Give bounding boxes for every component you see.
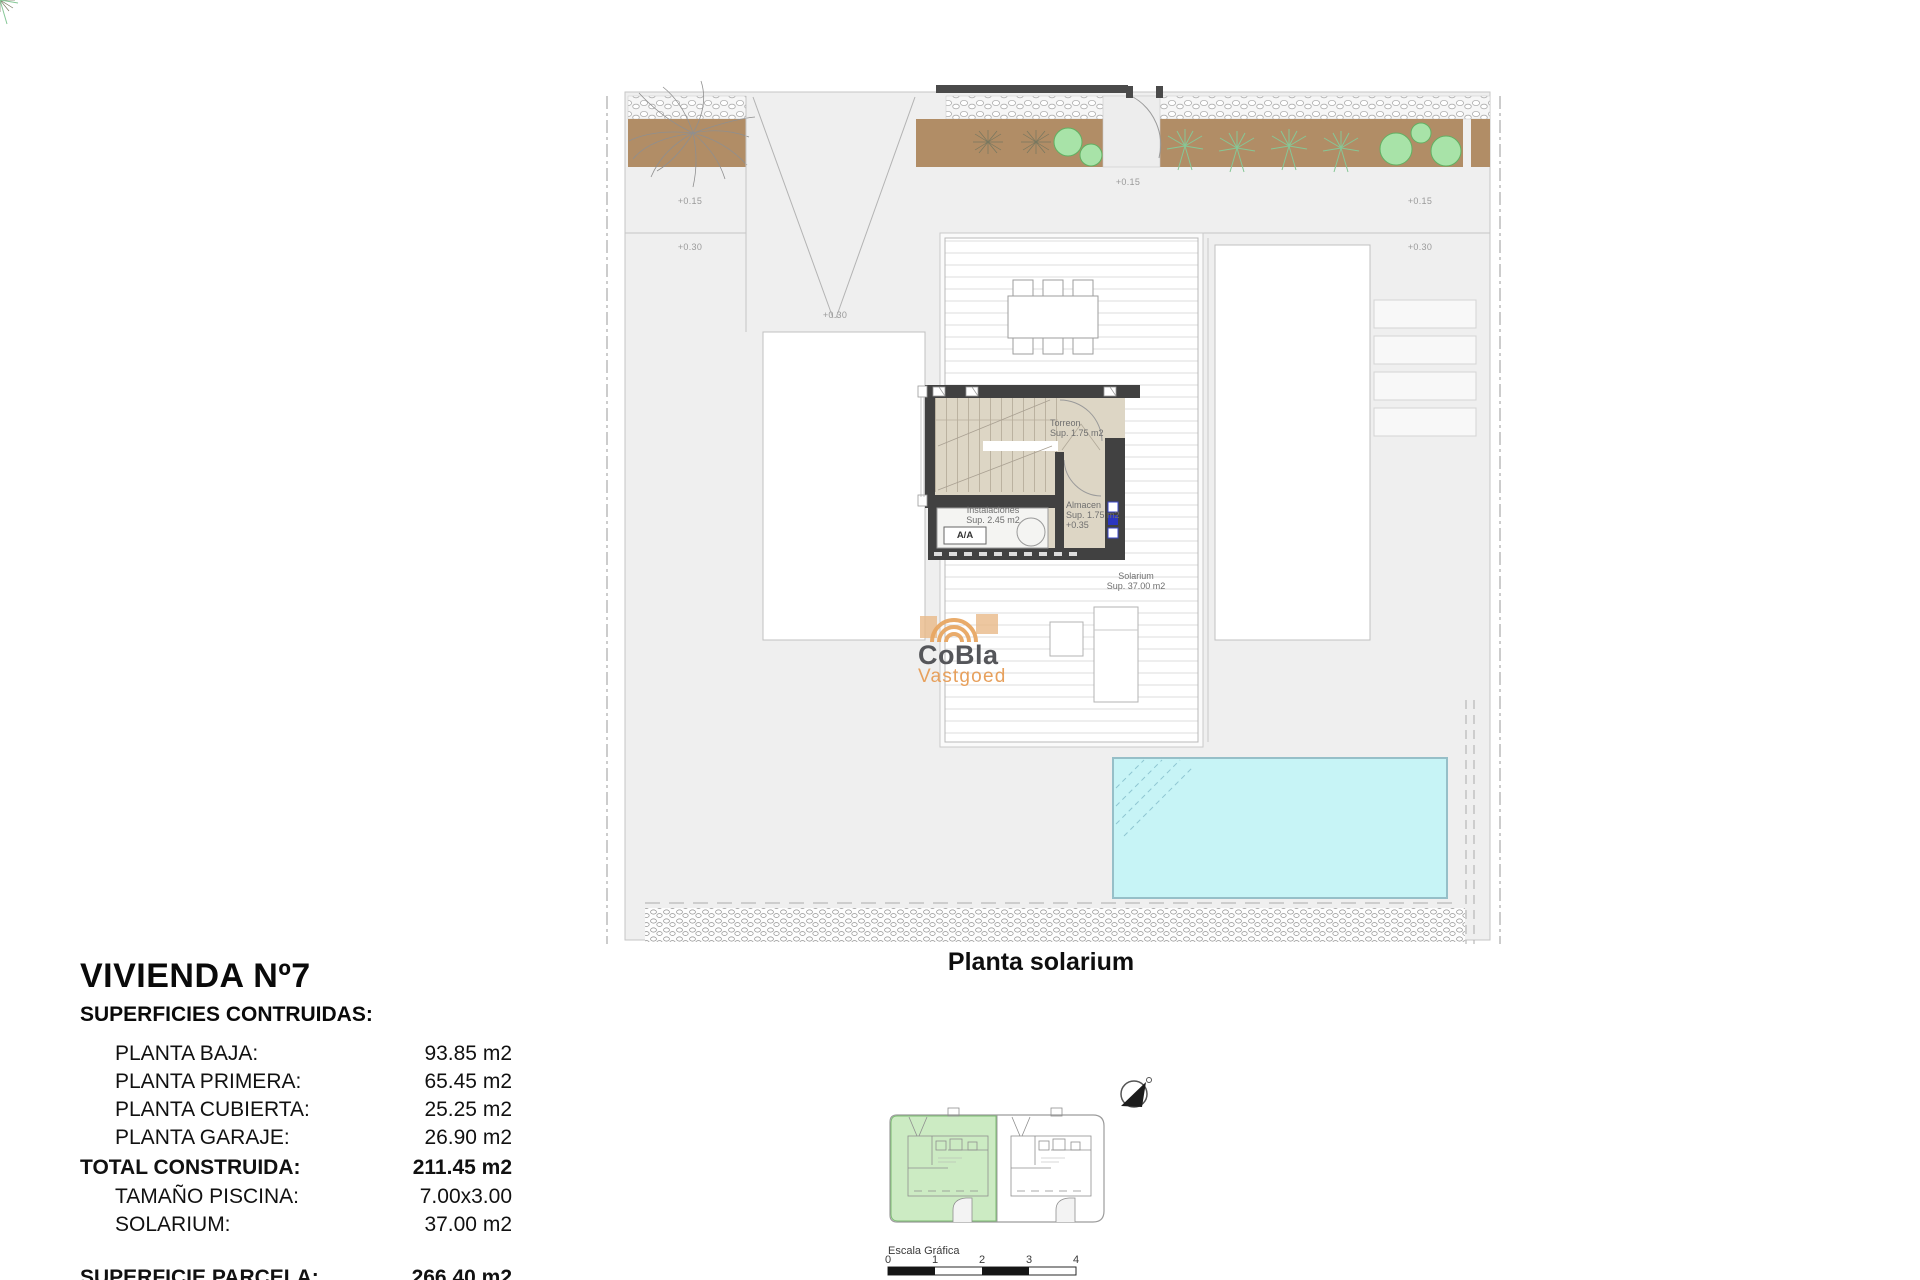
dwelling-title: VIVIENDA Nº7 (80, 956, 512, 996)
level-mark: +0.30 (668, 242, 712, 252)
logo-tagline: Vastgoed (918, 668, 1028, 686)
almacen-label: Almacen Sup. 1.75 m2 +0.35 (1066, 500, 1120, 530)
stair-landing (983, 441, 1058, 451)
info-panel: VIVIENDA Nº7 SUPERFICIES CONTRUIDAS: PLA… (80, 956, 512, 1280)
level-mark: +0.30 (1398, 242, 1442, 252)
highlighted-unit (891, 1116, 996, 1221)
right-roof-volume (1215, 245, 1370, 640)
level-mark: +0.15 (668, 196, 712, 206)
scale-tick: 0 (885, 1254, 891, 1266)
cobla-logo: CoBla Vastgoed (918, 606, 1028, 686)
total-row: TOTAL CONSTRUIDA: 211.45 m2 (80, 1152, 512, 1183)
level-mark: +0.30 (813, 310, 857, 320)
scale-tick: 2 (979, 1254, 985, 1266)
dining-table-icon (1008, 280, 1098, 354)
level-mark: +0.15 (1398, 196, 1442, 206)
level-mark: +0.15 (1106, 177, 1150, 187)
swimming-pool (1113, 758, 1447, 898)
surface-row: TAMAÑO PISCINA: 7.00x3.00 (80, 1183, 512, 1211)
floor-plan-page: +0.15 +0.30 +0.30 +0.15 +0.15 +0.30 Torr… (0, 0, 1920, 1280)
ac-unit-label: A/A (944, 527, 986, 544)
entry-header-wall (936, 85, 1128, 93)
solarium-label: Solarium Sup. 37.00 m2 (1098, 571, 1174, 591)
surface-row: PLANTA PRIMERA: 65.45 m2 (80, 1068, 512, 1096)
scale-label: Escala Gráfica (888, 1245, 960, 1257)
surface-row: SOLARIUM: 37.00 m2 (80, 1211, 512, 1239)
gravel-band (645, 908, 1465, 942)
north-compass-icon (1121, 1078, 1152, 1108)
instalaciones-label: Instalaciones Sup. 2.45 m2 (938, 505, 1048, 525)
parcel-row: SUPERFICIE PARCELA: 266.40 m2 (80, 1264, 512, 1280)
surface-row: PLANTA BAJA: 93.85 m2 (80, 1040, 512, 1068)
entry-gate (1103, 86, 1163, 167)
scale-tick: 3 (1026, 1254, 1032, 1266)
surfaces-subtitle: SUPERFICIES CONTRUIDAS: (80, 1002, 512, 1028)
scale-tick: 1 (932, 1254, 938, 1266)
scale-tick: 4 (1073, 1254, 1079, 1266)
left-roof-volume (763, 332, 925, 640)
surface-row: PLANTA CUBIERTA: 25.25 m2 (80, 1096, 512, 1124)
key-plan (890, 1108, 1104, 1222)
surface-row: PLANTA GARAJE: 26.90 m2 (80, 1124, 512, 1152)
scale-bar (888, 1267, 1076, 1275)
torreon-label: Torreon Sup. 1.75 m2 (1050, 418, 1104, 438)
plan-caption: Planta solarium (948, 948, 1134, 977)
